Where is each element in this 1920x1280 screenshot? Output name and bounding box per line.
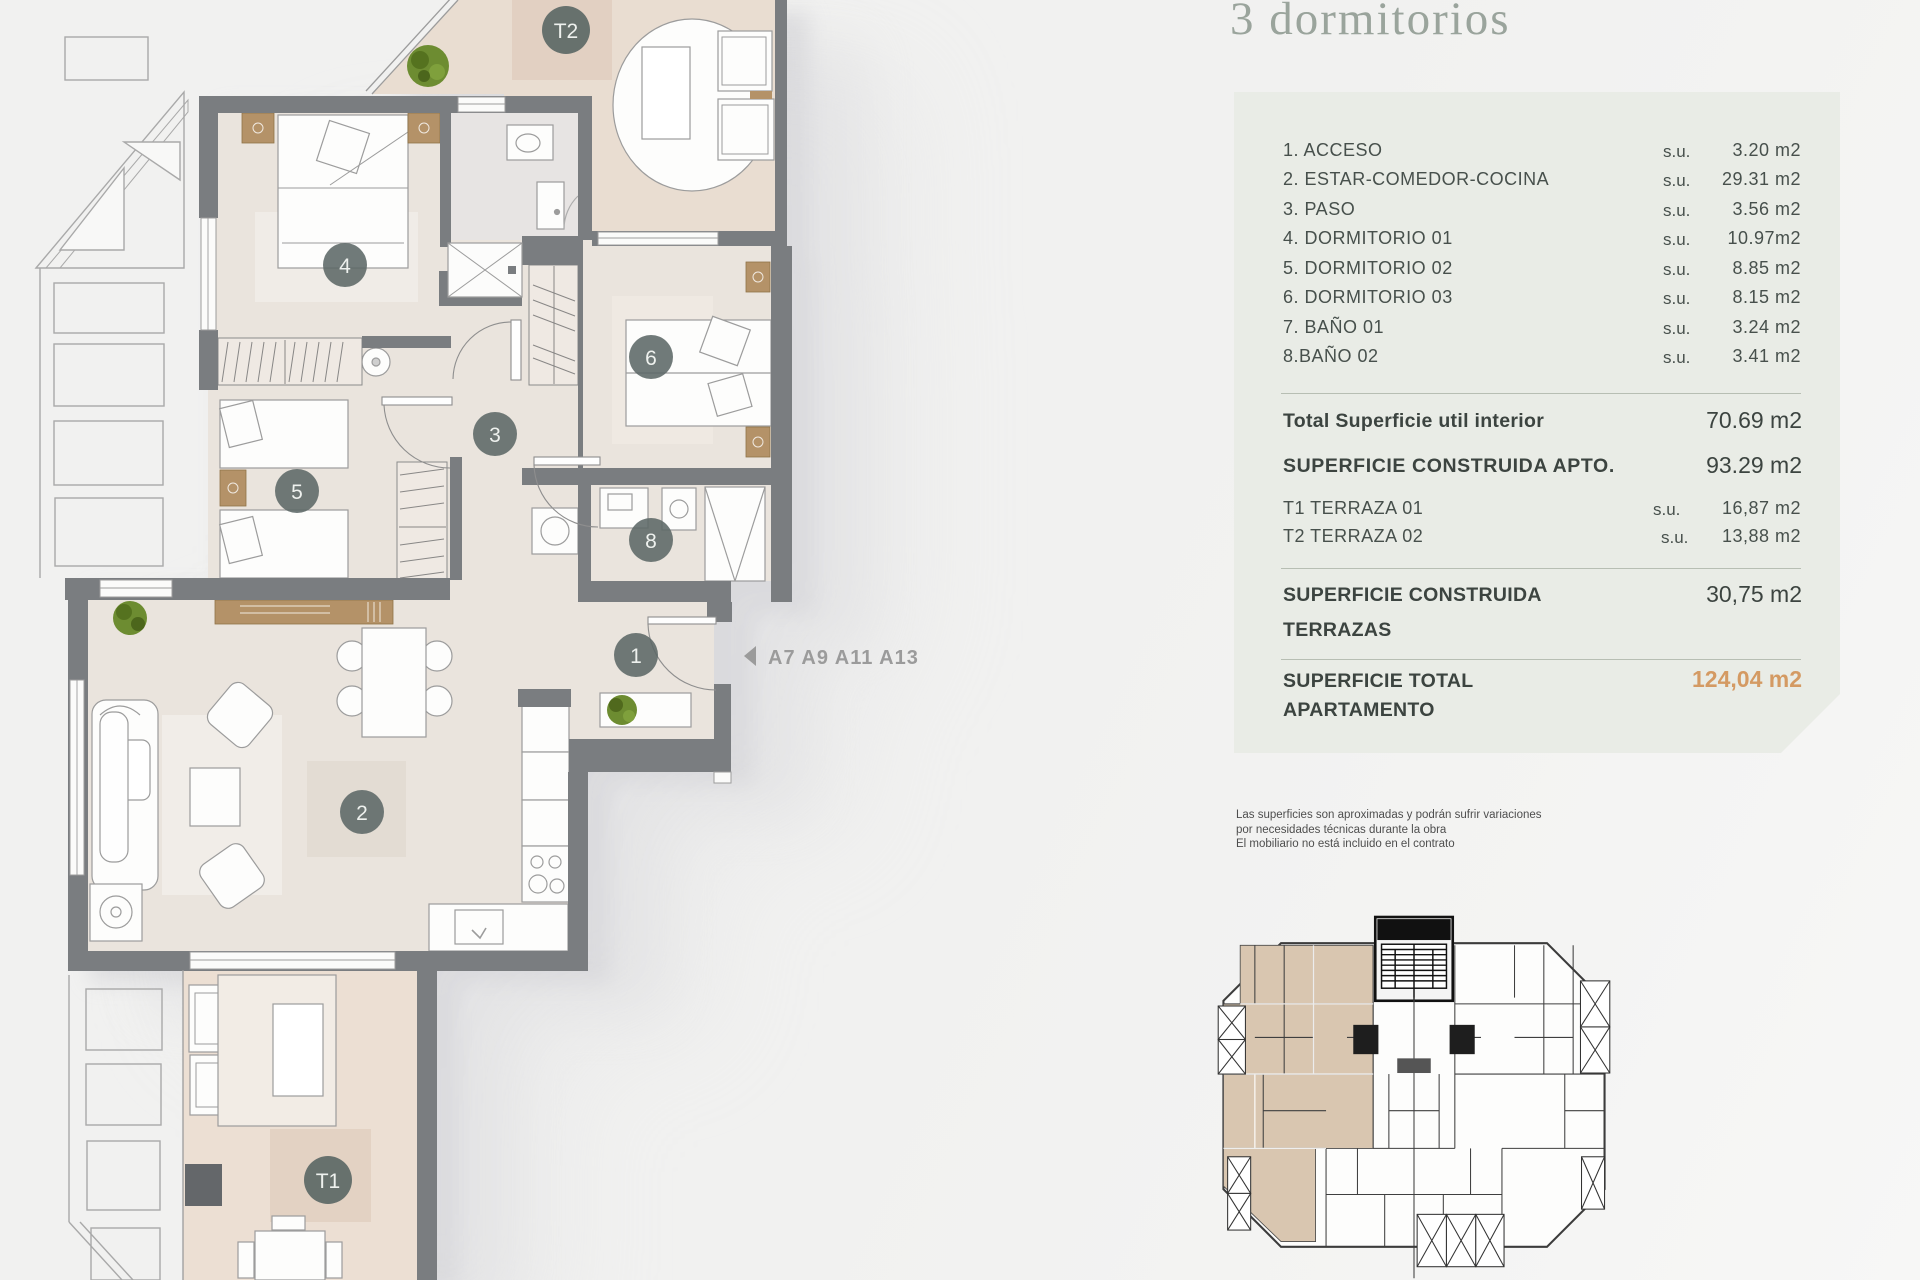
svg-text:5: 5 <box>291 481 303 504</box>
svg-text:T1: T1 <box>316 1170 341 1193</box>
svg-text:8: 8 <box>645 530 657 553</box>
svg-text:4: 4 <box>339 255 351 278</box>
svg-text:2: 2 <box>356 802 368 825</box>
svg-text:3: 3 <box>489 424 501 447</box>
svg-text:6: 6 <box>645 347 657 370</box>
svg-text:1: 1 <box>630 645 642 668</box>
svg-text:A7 A9 A11 A13: A7 A9 A11 A13 <box>768 647 919 669</box>
svg-text:T2: T2 <box>554 20 579 43</box>
